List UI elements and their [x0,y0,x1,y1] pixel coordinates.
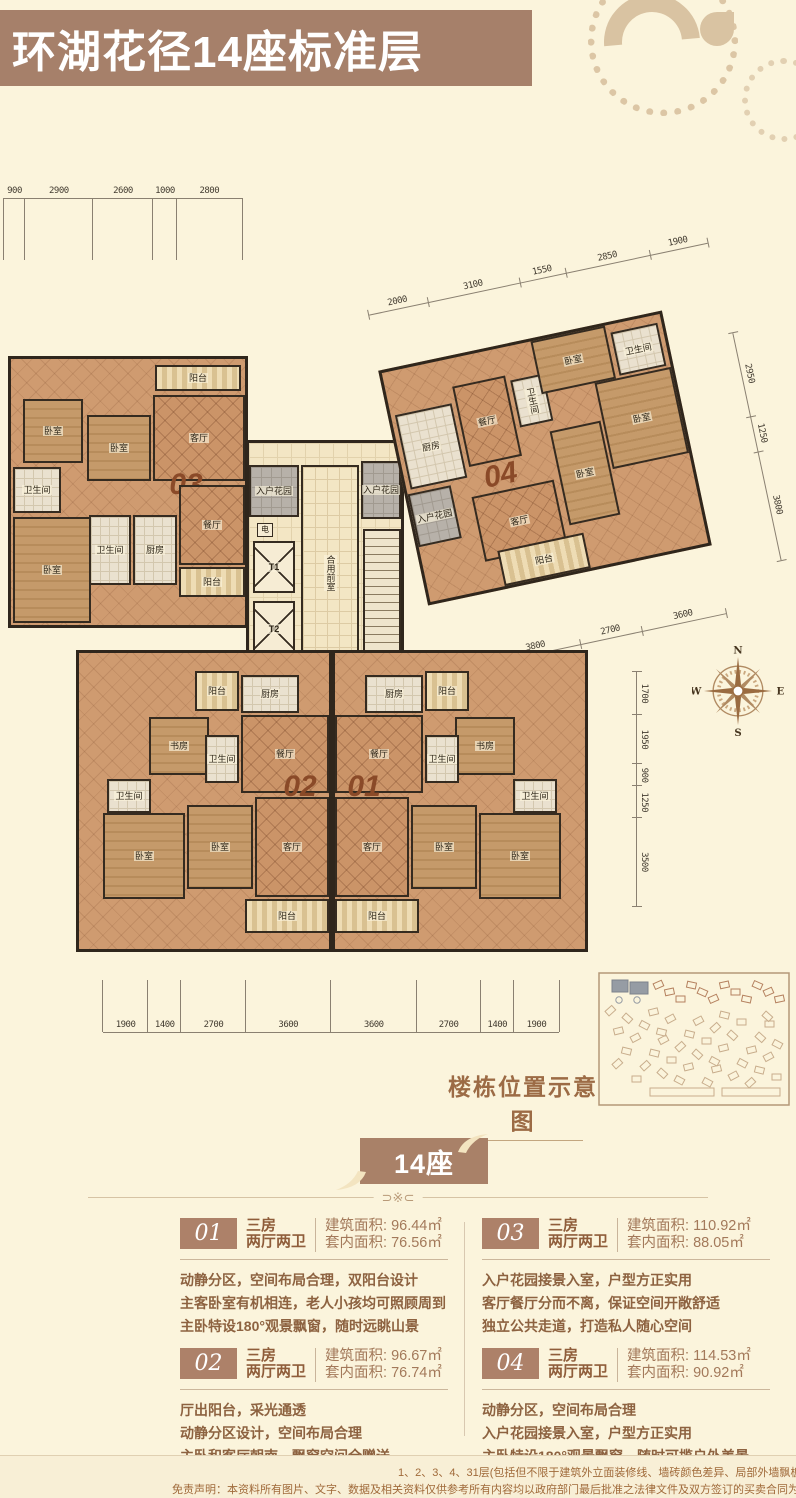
unit-number-badge: 03 [482,1218,539,1249]
bathroom: 卫生间 [205,735,239,783]
unit-type-line: 两厅两卫 [246,1364,306,1380]
dimension-segment: 1250 [636,786,652,817]
site-building [702,1077,713,1087]
compass-east-label: E [776,686,784,698]
site-building [765,1021,774,1027]
dimension-segment: 3800 [758,449,796,560]
shared-vestibule: 合用前室 [301,465,359,681]
dimension-segment: 2600 [93,183,154,199]
site-building [630,1033,641,1043]
unit-type-line: 两厅两卫 [548,1364,608,1380]
dimension-strip-right: 1700195090012503500 [636,672,652,906]
bedroom: 卧室 [187,805,253,889]
brochure-page: 环湖花径14座标准层 9002900260010002800 200031001… [0,0,796,1498]
bedroom: 卧室 [103,813,185,899]
unit-type: 三房 两厅两卫 [246,1218,306,1252]
site-diagram-label: 楼栋位置示意图 [448,1068,598,1141]
balcony: 阳台 [425,671,469,711]
site-building [676,996,685,1002]
dimension-segment: 3500 [636,818,652,906]
bathroom: 卫生间 [513,779,557,813]
dimension-segment: 1900 [103,1017,148,1033]
site-building [741,995,751,1003]
flourish-icon [456,1132,490,1154]
description-line: 入户花园接景入室，户型方正实用 [482,1422,770,1445]
dimension-segment: 1250 [750,414,773,453]
site-building [693,1016,704,1026]
compass-west-label: W [692,686,702,698]
header-bar: 环湖花径14座标准层 [0,10,532,86]
dimension-segment: 1550 [517,258,566,283]
site-building [665,1014,676,1024]
site-building [640,1060,651,1070]
site-building [727,1030,738,1040]
site-building [737,1058,748,1068]
description-line: 动静分区，空间布局合理，双阳台设计 [180,1269,448,1292]
site-building [632,1076,641,1082]
card-rule [180,1389,448,1390]
inner-area-value: 88.05㎡ [693,1235,744,1251]
site-building [745,1077,756,1087]
compass-north-label: N [733,645,742,656]
site-building [752,981,763,990]
bedroom: 卧室 [411,805,477,889]
dimension-segment: 1700 [636,672,652,715]
built-area-value: 114.53㎡ [693,1348,751,1364]
unit-type-line: 三房 [548,1348,608,1364]
dimension-segment: 1900 [514,1017,559,1033]
stairs [363,529,401,653]
column-divider [464,1222,465,1436]
dimension-strip-bottom: 19001400270036003600270014001900 [103,1017,559,1033]
dimension-segment: 2800 [177,183,242,199]
compass-rose-icon: N E S W [692,645,784,737]
unit-info-card-01: 01 三房 两厅两卫 建筑面积: 96.44㎡ 套内面积: 76.56㎡ 动静分… [180,1218,448,1338]
dimension-segment: 1400 [148,1017,181,1033]
dimension-segment: 1000 [153,183,176,199]
built-area-label: 建筑面积: [325,1348,387,1364]
entry-garden: 入户花园 [408,485,462,547]
dimension-segment: 3600 [640,599,726,632]
site-building [657,1068,668,1078]
description-line: 主卧特设180°观景飘窗，随时远眺山景 [180,1315,448,1338]
building-badge: 14座 [360,1138,488,1184]
site-building [762,1011,773,1021]
site-building [667,1057,676,1063]
site-building [702,1038,711,1044]
site-building [710,1022,721,1032]
kitchen: 厨房 [241,675,299,713]
living-room: 客厅 [335,797,409,897]
description-line: 入户花园接景入室，户型方正实用 [482,1269,770,1292]
dimension-segment: 900 [636,764,652,787]
dimension-strip-top-left: 9002900260010002800 [4,183,242,199]
inner-area-value: 76.56㎡ [391,1235,442,1251]
dimension-strip-unit04-right: 295012503800 [732,330,796,560]
floorplan-unit-01: 阳台厨房餐厅书房卫生间卫生间卧室卧室01客厅阳台 [332,650,588,952]
built-area-value: 96.67㎡ [391,1348,442,1364]
built-area-label: 建筑面积: [627,1218,689,1234]
site-building [719,981,729,989]
vertical-separator [315,1348,316,1382]
unit-type-line: 三房 [246,1348,306,1364]
site-building [675,1041,686,1051]
flourish-icon [334,1170,368,1192]
unit-type: 三房 两厅两卫 [548,1348,608,1382]
footer-note-line: 1、2、3、4、31层(包括但不限于建筑外立面装修线、墙砖颜色差异、局部外墙飘板… [398,1464,796,1480]
divider-ornament-icon: ⊃※⊂ [374,1189,423,1206]
site-building [746,1046,756,1054]
site-building [664,988,674,996]
unit-type-line: 两厅两卫 [246,1234,306,1250]
site-building [658,1035,669,1045]
floorplan-unit-02: 阳台厨房餐厅书房卫生间卫生间卧室卧室02客厅阳台 [76,650,332,952]
bathroom: 卫生间 [610,323,666,376]
dimension-segment: 2700 [417,1017,481,1033]
description-line: 独立公共走道，打造私人随心空间 [482,1315,770,1338]
dimension-segment: 2700 [578,616,644,645]
bathroom: 卫生间 [89,515,131,585]
unit-areas: 建筑面积: 110.92㎡ 套内面积: 88.05㎡ [627,1218,751,1252]
site-building [653,980,664,989]
vertical-separator [315,1218,316,1252]
card-rule [180,1259,448,1260]
inner-area-value: 90.92㎡ [693,1365,744,1381]
site-building [709,1056,720,1066]
site-building [728,1071,739,1081]
dining-room: 餐厅 [179,485,245,565]
shaft: 电 [257,523,273,537]
site-building [648,1008,658,1016]
inner-area-label: 套内面积: [325,1365,387,1381]
section-divider: ⊃※⊂ [88,1197,708,1198]
site-building [719,1011,729,1019]
bedroom: 卧室 [23,399,83,463]
site-building [772,1074,781,1080]
site-diagram [598,972,790,1106]
dimension-segment: 2700 [181,1017,245,1033]
elevator: T1 [253,541,295,593]
dimension-segment: 2900 [25,183,93,199]
page-title: 环湖花径14座标准层 [12,16,423,80]
entry-garden: 入户花园 [361,461,401,519]
kitchen: 厨房 [365,675,423,713]
site-building [649,1049,659,1057]
built-area-value: 96.44㎡ [391,1218,442,1234]
compass-south-label: S [734,727,741,737]
swirl-ornament-icon [700,12,734,46]
unit-info-card-04: 04 三房 两厅两卫 建筑面积: 114.53㎡ 套内面积: 90.92㎡ 动静… [482,1348,770,1468]
dimension-segment: 3600 [246,1017,332,1033]
entry-garden: 入户花园 [249,465,299,517]
bedroom: 卧室 [87,415,151,481]
unit-info-card-02: 02 三房 两厅两卫 建筑面积: 96.67㎡ 套内面积: 76.74㎡ 厅出阳… [180,1348,448,1468]
unit-type: 三房 两厅两卫 [246,1348,306,1382]
dimension-strip-unit04-top: 20003100155028501900 [366,228,708,316]
site-building [718,1044,728,1052]
balcony: 阳台 [179,567,245,597]
study: 书房 [149,717,209,775]
inner-area-label: 套内面积: [627,1365,689,1381]
unit-areas: 建筑面积: 114.53㎡ 套内面积: 90.92㎡ [627,1348,751,1382]
dimension-segment: 1950 [636,715,652,764]
description-line: 动静分区，空间布局合理 [482,1399,770,1422]
site-building [708,994,719,1003]
site-building [692,1049,703,1059]
unit-number-badge: 02 [180,1348,237,1379]
balcony: 阳台 [245,899,329,933]
site-building [737,1019,746,1025]
dimension-segment: 2000 [366,287,429,315]
site-building [697,988,708,997]
dimension-segment: 900 [4,183,25,199]
building-badge-label: 14座 [394,1142,454,1181]
unit-areas: 建筑面积: 96.44㎡ 套内面积: 76.56㎡ [325,1218,442,1252]
site-building [686,981,696,989]
living-room: 客厅 [255,797,329,897]
site-building [613,1027,623,1035]
site-building [763,1052,774,1062]
bathroom: 卫生间 [425,735,459,783]
circle-ornament-icon [742,58,796,142]
balcony: 阳台 [195,671,239,711]
balcony: 阳台 [335,899,419,933]
site-building [622,1013,633,1023]
description-line: 客厅餐厅分而不离，保证空间开敞舒适 [482,1292,770,1315]
site-building [763,987,774,996]
inner-area-label: 套内面积: [627,1235,689,1251]
dimension-segment: 1400 [481,1017,514,1033]
vertical-separator [617,1218,618,1252]
site-building [656,1028,666,1036]
vertical-separator [617,1348,618,1382]
site-building [674,1075,685,1085]
site-building [612,1058,623,1068]
unit-type: 三房 两厅两卫 [548,1218,608,1252]
elevator: T2 [253,601,295,657]
bedroom: 卧室 [595,367,690,469]
unit-number-badge: 01 [180,1218,237,1249]
site-building [683,1063,693,1071]
unit-number-badge: 04 [482,1348,539,1379]
site-building [731,989,740,995]
dimension-segment: 3600 [331,1017,417,1033]
inner-area-label: 套内面积: [325,1235,387,1251]
balcony: 阳台 [155,365,241,391]
built-area-label: 建筑面积: [325,1218,387,1234]
site-building [639,1020,650,1030]
unit-type-line: 两厅两卫 [548,1234,608,1250]
floorplan-unit-03: 阳台卧室卧室客厅卫生间03餐厅卫生间厨房卧室阳台 [8,356,248,628]
unit-info-card-03: 03 三房 两厅两卫 建筑面积: 110.92㎡ 套内面积: 88.05㎡ 入户… [482,1218,770,1338]
site-building [684,1030,694,1038]
bedroom: 卧室 [479,813,561,899]
card-rule [482,1259,770,1260]
site-building [755,1032,766,1042]
site-building [621,1047,631,1055]
floorplan-unit-04: 入户花园厨房餐厅04卫生间卧室卫生间卧室客厅卧室阳台 [378,310,712,605]
site-building [605,1005,616,1015]
inner-area-value: 76.74㎡ [391,1365,442,1381]
dimension-segment: 2950 [732,330,765,417]
built-area-label: 建筑面积: [627,1348,689,1364]
dimension-segment: 3100 [425,268,520,303]
site-building [754,1066,764,1074]
footer-disclaimer-line: 免责声明：本资料所有图片、文字、数据及相关资料仅供参考所有内容均以政府部门最后批… [172,1481,796,1497]
site-building [772,1039,783,1049]
dimension-segment: 2850 [563,240,651,274]
description-line: 动静分区设计，空间布局合理 [180,1422,448,1445]
kitchen: 厨房 [133,515,177,585]
unit-type-line: 三房 [548,1218,608,1234]
unit-description: 入户花园接景入室，户型方正实用 客厅餐厅分而不离，保证空间开敞舒适 独立公共走道… [482,1269,770,1338]
bathroom: 卫生间 [107,779,151,813]
description-line: 厅出阳台，采光通透 [180,1399,448,1422]
dimension-segment: 1900 [648,228,708,256]
bedroom: 卧室 [13,517,91,623]
built-area-value: 110.92㎡ [693,1218,751,1234]
footer: 1、2、3、4、31层(包括但不限于建筑外立面装修线、墙砖颜色差异、局部外墙飘板… [0,1455,796,1498]
unit-type-line: 三房 [246,1218,306,1234]
site-building [774,995,784,1003]
study: 书房 [455,717,515,775]
kitchen: 厨房 [395,403,468,489]
description-line: 主客卧室有机相连，老人小孩均可照顾周到 [180,1292,448,1315]
unit-description: 动静分区，空间布局合理，双阳台设计 主客卧室有机相连，老人小孩均可照顾周到 主卧… [180,1269,448,1338]
card-rule [482,1389,770,1390]
bathroom: 卫生间 [13,467,61,513]
unit-areas: 建筑面积: 96.67㎡ 套内面积: 76.74㎡ [325,1348,442,1382]
